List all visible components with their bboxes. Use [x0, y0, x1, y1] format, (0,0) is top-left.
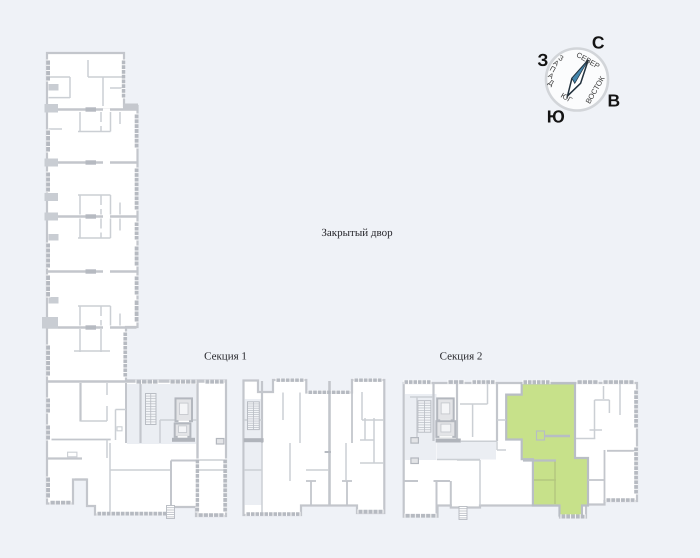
svg-text:Секция 1: Секция 1	[204, 351, 247, 363]
svg-text:Закрытый двор: Закрытый двор	[321, 227, 393, 239]
svg-text:В: В	[607, 91, 620, 111]
svg-text:С: С	[592, 33, 605, 53]
svg-text:З: З	[537, 50, 548, 70]
svg-text:Ю: Ю	[547, 106, 565, 126]
svg-text:Секция 2: Секция 2	[440, 351, 483, 363]
